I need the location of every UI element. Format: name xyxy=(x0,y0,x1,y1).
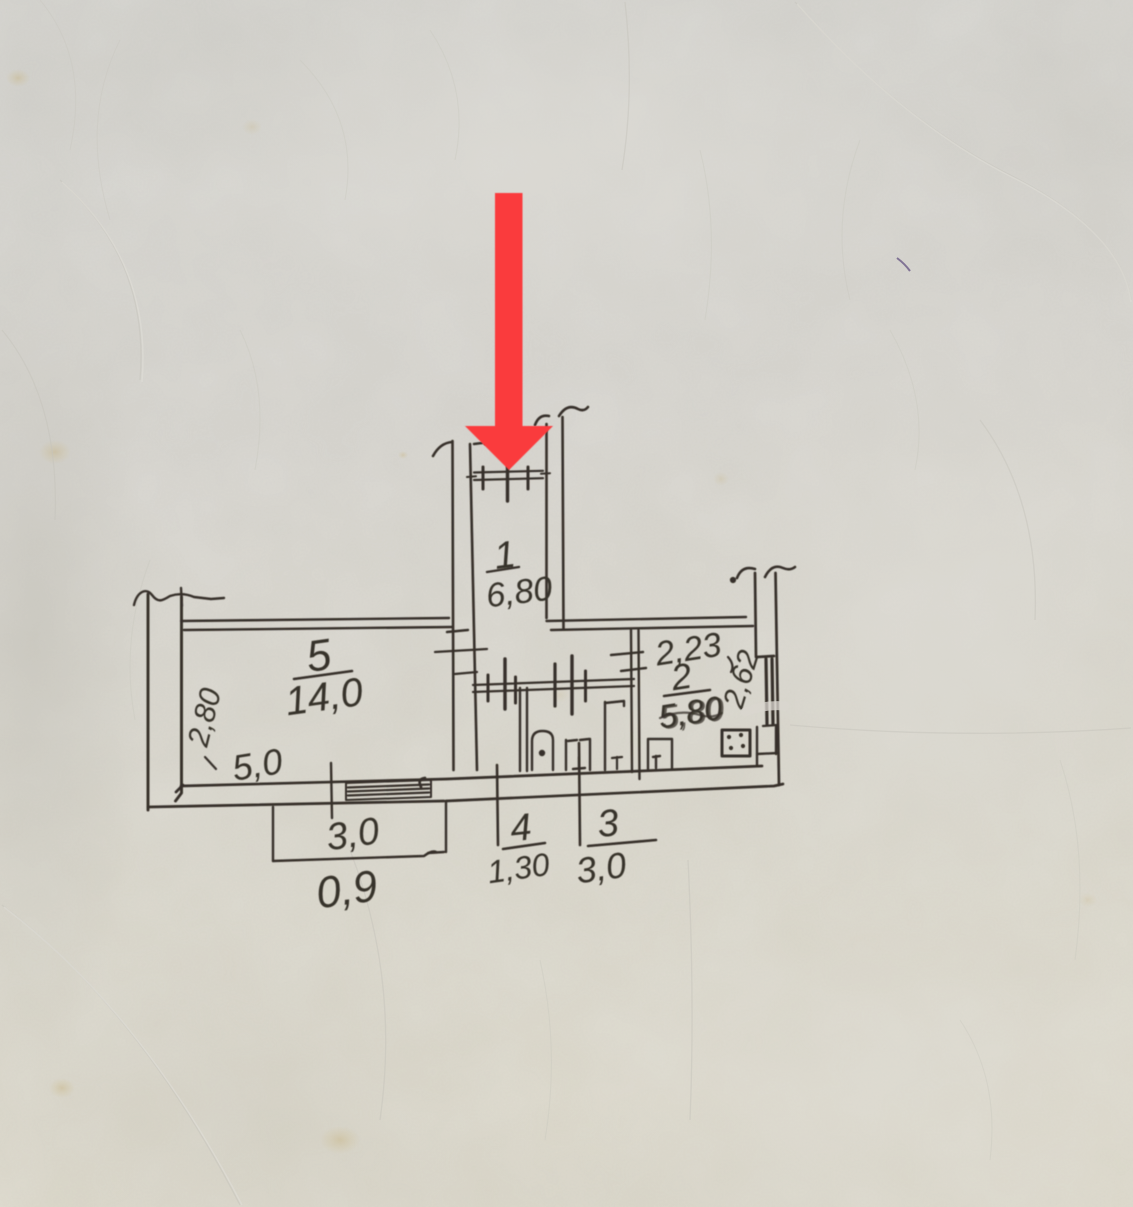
svg-text:3,0: 3,0 xyxy=(573,844,628,892)
svg-text:3,0: 3,0 xyxy=(324,810,382,859)
svg-text:3: 3 xyxy=(595,802,620,846)
svg-text:6,80: 6,80 xyxy=(484,569,554,615)
svg-text:0,9: 0,9 xyxy=(313,861,380,918)
svg-text:4: 4 xyxy=(508,806,533,850)
svg-text:5,0: 5,0 xyxy=(229,740,285,788)
